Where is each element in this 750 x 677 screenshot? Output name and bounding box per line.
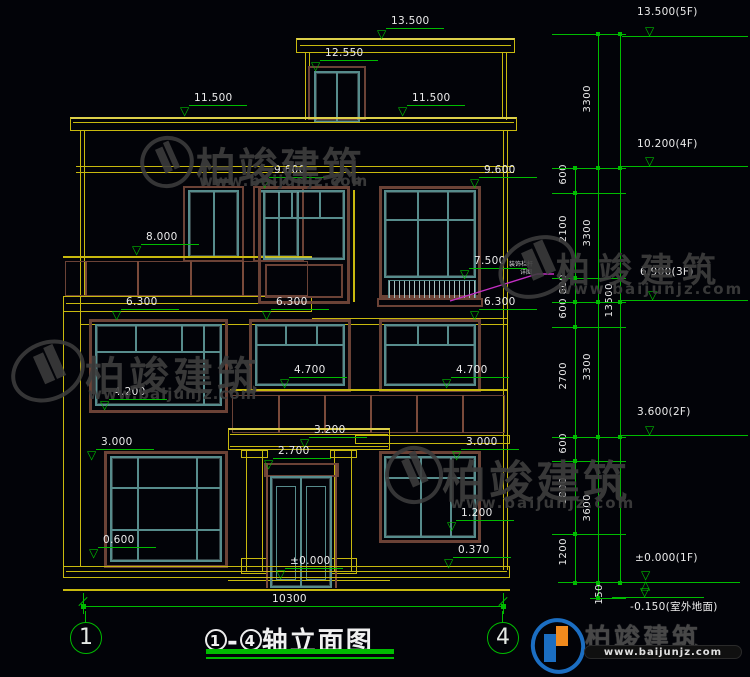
elevation-marker-line [273,458,331,459]
right-marker-line [622,435,748,436]
elevation-marker-line [141,244,199,245]
watermark-url-text: www.baijunjz.com [88,385,257,403]
lnt-element [213,192,215,256]
elevation-marker-line [407,105,465,106]
elevation-label: ±0.000 [290,555,331,567]
sq-element [81,604,86,609]
lnb-element [137,261,139,296]
ln-element [305,53,306,120]
chain-tick [596,435,600,439]
watermark-url-text: www.baijunjz.com [558,280,743,298]
elevation-marker-triangle: ▽ [132,244,141,256]
chain-tick [573,581,577,585]
title-underline-thin [206,657,394,659]
elevation-marker-triangle: ▽ [470,177,479,189]
elevation-marker-line [453,557,511,558]
watermark-url-text: www.baijunjz.com [199,172,368,190]
lnt-element [196,458,198,560]
elevation-marker-line [451,377,509,378]
lnt-element [417,326,419,344]
2f-rail-top [230,389,507,391]
elevation-label: 3.200 [314,424,346,436]
ln-element [506,53,507,120]
elevation-marker-line [98,547,156,548]
elevation-marker-triangle: ▽ [398,105,407,117]
chain-extension-line [552,534,626,535]
elevation-marker-line [96,449,154,450]
3f-window-grille [388,280,476,299]
lnt-element [257,344,343,346]
elevation-marker-triangle: ▽ [87,449,96,461]
lnt-element [417,192,419,276]
lnt-element [386,219,474,221]
chain-extension-line [552,327,626,328]
title-underline-thick [206,649,394,654]
lng-element [575,168,576,583]
right-elevation-label: 10.200(4F) [637,138,698,150]
chain-tick [618,300,622,304]
chain-tick [573,532,577,536]
title-axis-num-left: 1 [205,629,227,651]
elevation-marker-line [289,377,347,378]
chain-dim-middle: 3300 [582,353,593,380]
watermark-url-text: www.baijunjz.com [450,494,635,512]
ln-element [502,53,503,117]
ground-line [63,589,510,591]
elevation-marker-triangle: ▽ [377,28,386,40]
elevation-label: 0.370 [458,544,490,556]
lnt-element [386,344,474,346]
elevation-marker-triangle: ▽ [180,105,189,117]
lng-element [598,34,599,598]
chain-dim-inner: 1200 [558,538,569,565]
lnt-element [285,326,287,344]
right-marker-line [622,166,748,167]
right-marker-line [622,300,748,301]
chain-tick [618,435,622,439]
lnt-element [447,192,449,276]
entrance-door-head [264,463,339,477]
elevation-drawing-canvas: 10300 1 4 1-4轴立面图 装饰栏杆 详图 柏竣建筑 www.baiju… [0,0,750,677]
elevation-marker-triangle: ▽ [112,309,121,321]
overall-width-dim: 10300 [272,593,307,605]
lng-element [83,606,504,607]
elevation-label: 6.300 [276,296,308,308]
elevation-marker-triangle: ▽ [264,458,273,470]
logo-bar-orange [556,626,568,646]
chain-tick [618,581,622,585]
elevation-marker-triangle: ▽ [89,547,98,559]
box-element [70,117,517,131]
chain-extension-line [552,437,626,438]
title-axis-num-right: 4 [240,629,262,651]
chain-dim-extra: 150 [594,584,605,605]
elevation-label: 4.700 [456,364,488,376]
elevation-marker-line [456,520,514,521]
3f-center-spandrel [265,264,343,298]
chain-tick [573,191,577,195]
porch-column-left [246,450,263,572]
axis-bubble-4: 4 [487,622,519,654]
chain-tick [596,32,600,36]
logo-url-bar: www.baijunjz.com [584,645,742,659]
lnb-element [416,395,418,433]
chain-tick [573,325,577,329]
elevation-marker-line [479,309,537,310]
elevation-label: 4.700 [294,364,326,376]
elevation-marker-line [271,309,329,310]
pilaster [353,190,355,302]
elevation-label: 3.000 [101,436,133,448]
elevation-label: 13.500 [391,15,430,27]
elevation-marker-triangle: ▽ [442,377,451,389]
elevation-marker-triangle: ▽ [444,557,453,569]
elevation-label: 9.600 [484,164,516,176]
elevation-marker-triangle: ▽ [460,268,469,280]
lnb-element [242,261,244,296]
logo-bar-blue [544,634,556,662]
elevation-marker-triangle: ▽ [447,520,456,532]
chain-extension-line [552,34,626,35]
elevation-marker-line [479,177,537,178]
chain-tick [573,300,577,304]
right-elevation-label: 3.600(2F) [637,406,691,418]
lnb-element [85,261,87,296]
chain-extension-line [552,168,626,169]
chain-extension-line [552,193,626,194]
right-marker-line [622,36,748,37]
lnt-element [265,217,343,219]
elevation-marker-line [309,437,367,438]
right-elevation-label: -0.150(室外地面) [630,599,718,614]
elevation-marker-triangle: ▽ [470,309,479,321]
elevation-label: 11.500 [412,92,451,104]
elevation-label: 11.500 [194,92,233,104]
left-wall [80,131,81,567]
chain-tick [596,166,600,170]
elevation-marker-triangle: ▽ [276,568,285,580]
lnb-element [190,261,192,296]
chain-tick [573,435,577,439]
lnt-element [137,458,139,560]
zero-level-line [558,582,740,583]
ln-element [300,45,511,46]
lnt-element [319,192,321,217]
elevation-label: 6.300 [126,296,158,308]
elevation-marker-triangle: ▽ [311,60,320,72]
3f-right-window [384,190,476,278]
elevation-marker-line [121,309,179,310]
elevation-marker-line [320,60,378,61]
elevation-label: 6.300 [484,296,516,308]
elevation-marker-line [189,105,247,106]
chain-tick [596,300,600,304]
elevation-marker-line [386,28,444,29]
chain-extension-line [552,302,626,303]
elevation-marker-triangle: ▽ [280,377,289,389]
lnt-element [336,73,338,121]
chain-dim-inner: 2700 [558,362,569,389]
chain-tick [618,32,622,36]
ln-element [66,571,507,572]
elevation-label: 2.700 [278,445,310,457]
lnb-element [462,395,464,433]
ln-element [230,434,388,435]
elevation-label: 8.000 [146,231,178,243]
chain-tick [596,596,600,600]
chain-tick [618,166,622,170]
lnt-element [112,487,220,489]
chain-tick [573,166,577,170]
chain-tick [596,581,600,585]
3f-right-window-sill [377,298,483,307]
3f-center-window [263,190,345,260]
lnt-element [112,529,220,531]
lnt-element [447,326,449,344]
lnt-element [291,192,293,217]
right-elevation-label: ±0.000(1F) [635,552,698,564]
axis-bubble-1: 1 [70,622,102,654]
ln-element [73,122,514,123]
chain-dim-middle: 3300 [582,85,593,112]
elevation-marker-triangle: ▽ [262,309,271,321]
elevation-label: 0.600 [103,534,135,546]
elevation-marker-line [285,568,343,569]
right-elevation-label: 13.500(5F) [637,6,698,18]
sq-element [501,604,506,609]
elevation-label: 12.550 [325,47,364,59]
lnt-element [316,326,318,344]
